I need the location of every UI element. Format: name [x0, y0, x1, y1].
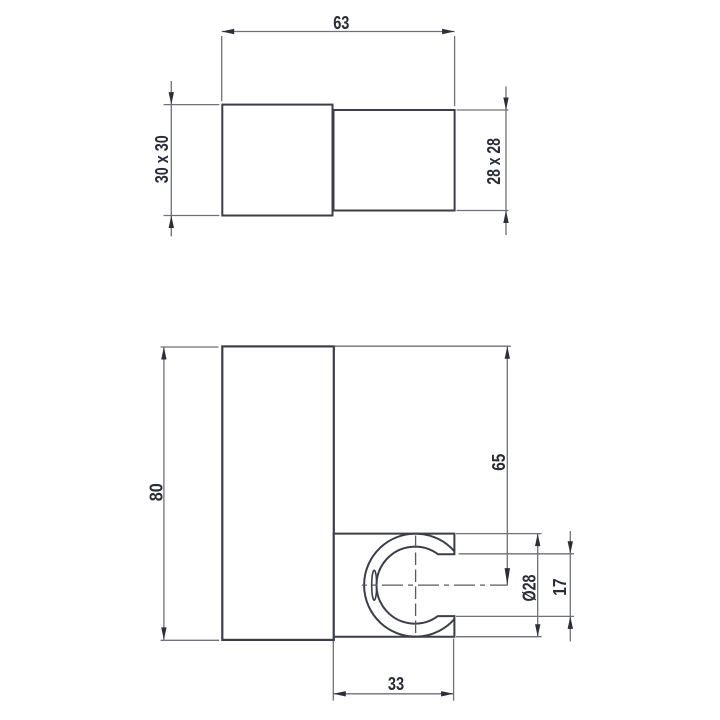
svg-text:28 x 28: 28 x 28	[484, 138, 504, 185]
svg-text:33: 33	[388, 673, 404, 694]
svg-text:17: 17	[550, 578, 570, 596]
svg-text:80: 80	[146, 483, 166, 501]
svg-text:Ø28: Ø28	[520, 575, 540, 602]
svg-text:63: 63	[333, 12, 349, 33]
svg-text:65: 65	[489, 454, 509, 471]
svg-text:30 x 30: 30 x 30	[152, 135, 172, 183]
